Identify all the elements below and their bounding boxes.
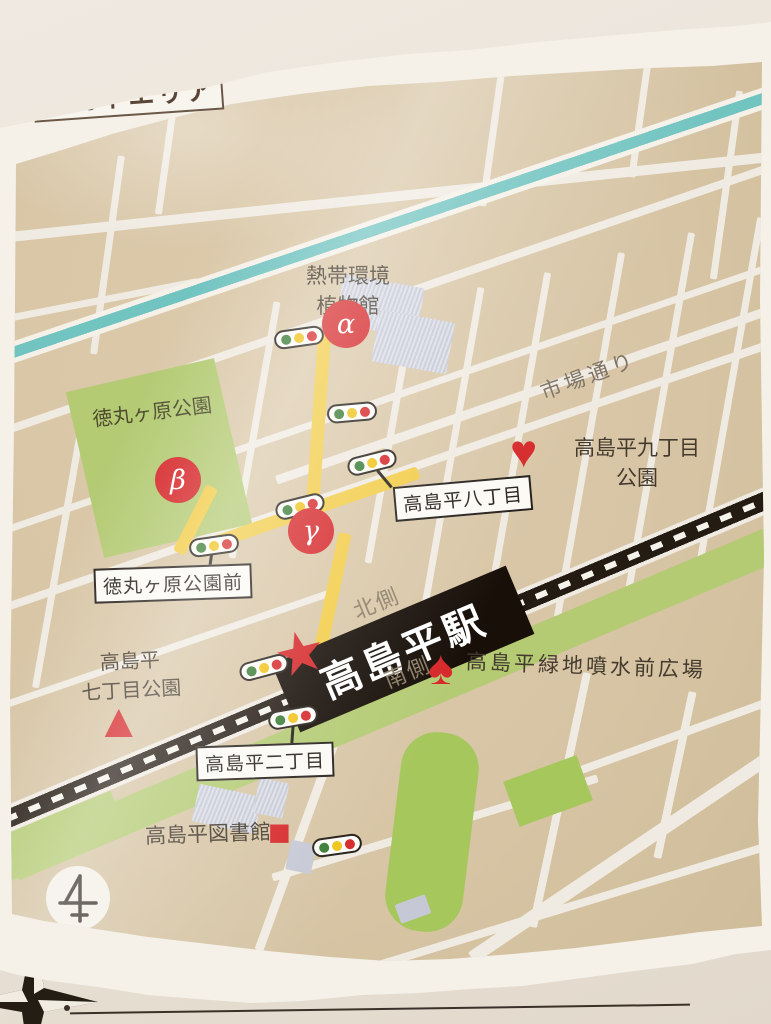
square-icon: ■: [268, 814, 291, 852]
beta-glyph: β: [170, 465, 186, 496]
spade-icon: ♠: [428, 645, 454, 693]
tokumarugahara-park-area: [66, 358, 252, 558]
area-title: 高島平エリア: [40, 69, 216, 118]
map-canvas: 高島平駅 北側 南側 市場通り 熱帯環境 植物館 徳丸ヶ原公園 高島平九丁目 公…: [0, 0, 771, 1024]
map-sheet: 高島平駅 北側 南側 市場通り 熱帯環境 植物館 徳丸ヶ原公園 高島平九丁目 公…: [0, 0, 771, 1024]
decoration-line: [70, 1004, 690, 1015]
heart-icon: ♥: [510, 428, 537, 474]
marker-beta: β: [155, 457, 201, 503]
park9-label: 高島平九丁目 公園: [552, 432, 722, 492]
traffic-light-icon: [326, 401, 377, 424]
area-map-photo: 高島平駅 北側 南側 市場通り 熱帯環境 植物館 徳丸ヶ原公園 高島平九丁目 公…: [0, 0, 771, 1024]
gamma-glyph: γ: [303, 516, 319, 547]
decoration-line-dot: [64, 1005, 70, 1011]
marker-gamma: γ: [288, 508, 334, 554]
fountain-plaza-label: 高島平緑地噴水前広場: [466, 646, 707, 684]
tokumarugahara-mae-label-box: 徳丸ヶ原公園前: [93, 563, 252, 603]
road: [155, 55, 184, 214]
alpha-glyph: α: [337, 309, 355, 340]
chome2-label-box: 高島平二丁目: [195, 742, 334, 782]
park9-line2: 公園: [552, 462, 722, 492]
north-compass: [46, 866, 110, 930]
triangle-icon: ▲: [95, 698, 143, 746]
road: [628, 38, 654, 178]
marker-alpha: α: [322, 300, 370, 348]
library-label: 高島平図書館: [145, 816, 272, 850]
north-compass-icon: [46, 866, 110, 930]
botanical-museum-line1: 熱帯環境: [293, 260, 403, 290]
green-block: [503, 755, 593, 827]
chome8-label-box: 高島平八丁目: [393, 475, 534, 522]
park9-line1: 高島平九丁目: [552, 432, 722, 462]
